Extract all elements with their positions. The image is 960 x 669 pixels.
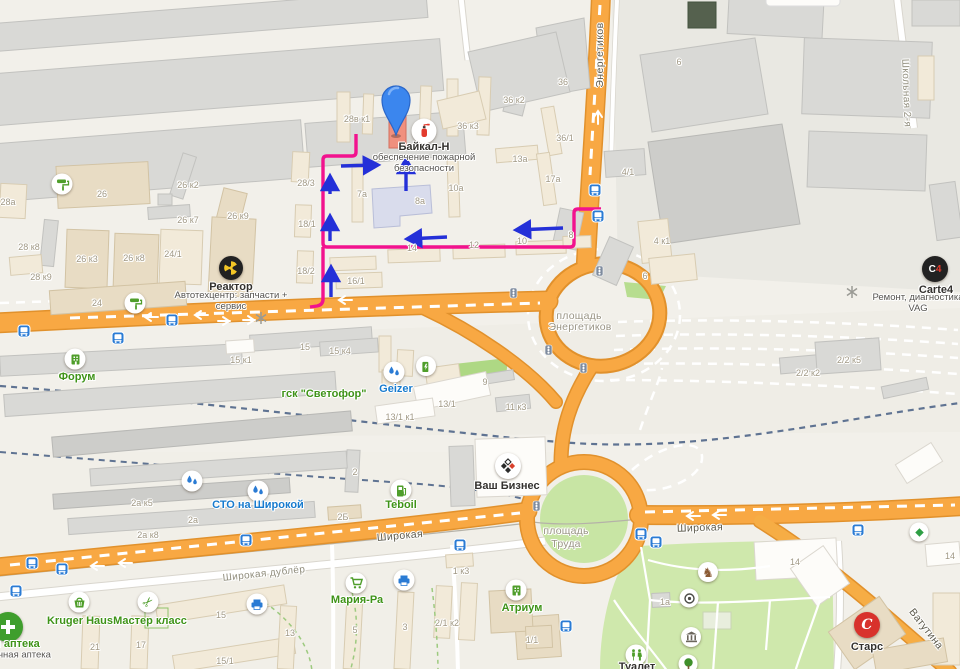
scissors-icon-master-klass[interactable]: ✂ [138, 592, 159, 613]
business-icon-vash-biznes[interactable] [495, 453, 521, 479]
traffic-light-icon [578, 363, 589, 374]
building-label: 36 [558, 77, 568, 87]
labels-layer: 28в к13636 к236 к336/113а17а10а8а7а28/31… [0, 0, 960, 669]
poi-label-master-klass[interactable]: Мастер класс [113, 615, 187, 627]
building-label: 2/1 к2 [435, 618, 459, 628]
building-icon-atrium[interactable] [506, 580, 527, 601]
building-label: 28в к1 [344, 114, 370, 124]
building-label: 10 [517, 236, 527, 246]
building-label: 18/2 [297, 266, 315, 276]
building-label: 8 [568, 230, 573, 240]
building-label: 2а к5 [131, 498, 152, 508]
street-label: площадь [543, 525, 588, 537]
camera-icon [680, 589, 699, 608]
poi-label-geizer[interactable]: Geizer [379, 383, 413, 395]
building-label: 5 [352, 625, 357, 635]
building-label: 36 к3 [457, 121, 478, 131]
building-label: 28 к9 [30, 272, 51, 282]
building-label: 15 к1 [230, 355, 251, 365]
building-label: 14 [407, 243, 417, 253]
street-label: Школьная 2-я [899, 59, 912, 128]
bus-stop-icon[interactable] [166, 314, 179, 327]
poi-label-kruger-haus[interactable]: Kruger Haus [47, 615, 113, 627]
building-label: 28/3 [297, 178, 315, 188]
museum-icon [681, 627, 701, 647]
street-label: площадь [556, 310, 601, 322]
fuel-icon-teboil[interactable] [391, 480, 412, 501]
building-label: 28а [0, 197, 15, 207]
building-icon-forum[interactable] [65, 349, 86, 370]
building-label: 4 к1 [654, 236, 670, 246]
printer-icon [247, 594, 268, 615]
building-label: 2 [352, 467, 357, 477]
printer-icon [394, 570, 415, 591]
poi-label-atrium[interactable]: Атриум [502, 602, 543, 614]
building-label: 13/1 к1 [386, 412, 415, 422]
building-label: 4/1 [622, 167, 635, 177]
building-label: 17 [136, 640, 146, 650]
rail-cross-icon [846, 286, 858, 298]
traffic-light-icon [531, 501, 542, 512]
building-label: 1а [660, 597, 670, 607]
poi-label-carte4[interactable]: Carte4 [919, 284, 953, 296]
bus-stop-icon[interactable] [112, 332, 125, 345]
building-label: 36 к2 [503, 95, 524, 105]
water-icon-sto-na-shirokoy[interactable] [248, 481, 269, 502]
map-viewport[interactable]: 28в к13636 к236 к336/113а17а10а8а7а28/31… [0, 0, 960, 669]
poi-label-vash-biznes[interactable]: Ваш Бизнес [474, 480, 539, 492]
bus-stop-icon[interactable] [560, 620, 573, 633]
building-label: 26 к9 [227, 211, 248, 221]
carte4-icon-carte4[interactable]: C4 [922, 256, 948, 282]
poi-sublabel-apteka: очная аптека [0, 651, 82, 662]
poi-sublabel-carte4: Ремонт, диагностика VAG [862, 293, 960, 315]
street-label: Ватутина [906, 606, 945, 651]
paint-roller-icon [52, 174, 73, 195]
ev-charge-icon [416, 356, 436, 376]
traffic-light-icon [543, 345, 554, 356]
building-label: 26 к7 [177, 215, 198, 225]
building-label: 21 [90, 642, 100, 652]
building-label: 2Б [338, 512, 349, 522]
water-icon [182, 471, 203, 492]
poi-label-teboil[interactable]: Teboil [385, 499, 417, 511]
poi-label-forum[interactable]: Форум [59, 371, 96, 383]
building-label: 2/2 к2 [796, 368, 820, 378]
reactor-icon-reaktor[interactable] [219, 256, 243, 280]
building-label: 1 к3 [453, 566, 469, 576]
building-label: 14 [945, 551, 955, 561]
diamond-icon [910, 523, 929, 542]
bus-stop-icon[interactable] [10, 585, 23, 598]
bus-stop-icon[interactable] [454, 539, 467, 552]
bus-stop-icon[interactable] [18, 325, 31, 338]
paint-roller-icon [125, 293, 146, 314]
poi-sublabel-reaktor: Автотехцентр: запчасти + сервис [162, 291, 300, 313]
street-label: Широкая дублёр [222, 564, 306, 584]
building-label: 6 [676, 57, 681, 67]
building-label: 16/1 [347, 276, 365, 286]
building-label: 2/2 к5 [837, 355, 861, 365]
bus-stop-icon[interactable] [635, 528, 648, 541]
building-label: 14 [790, 557, 800, 567]
building-label: 11 к3 [506, 402, 527, 412]
bus-stop-icon[interactable] [26, 557, 39, 570]
bus-stop-icon[interactable] [240, 534, 253, 547]
horse-icon: ♞ [698, 562, 718, 582]
bus-stop-icon[interactable] [592, 210, 605, 223]
traffic-light-icon [594, 266, 605, 277]
basket-icon-kruger-haus[interactable] [69, 592, 90, 613]
building-label: 28 к8 [18, 242, 39, 252]
poi-label-reaktor[interactable]: Реактор [209, 281, 252, 293]
building-label: 13/1 [438, 399, 456, 409]
building-label: 17а [545, 174, 560, 184]
street-label: Энергетиков [548, 321, 611, 333]
building-label: 15/1 [216, 656, 234, 666]
street-label: Энергетиков [594, 22, 606, 87]
building-label: 36/1 [556, 133, 574, 143]
building-label: 13 [285, 628, 295, 638]
building-label: 18/1 [298, 219, 316, 229]
building-label: 26 к3 [76, 254, 97, 264]
building-label: 7а [357, 189, 367, 199]
building-label: 2а к8 [137, 530, 158, 540]
bus-stop-icon[interactable] [589, 184, 602, 197]
water-icon-geizer[interactable] [384, 362, 405, 383]
building-label: 15 к4 [329, 346, 350, 356]
building-label: 9 [482, 377, 487, 387]
building-label: 24 [92, 298, 102, 308]
poi-sublabel-baikal-n: обеспечение пожарной безопасности [360, 153, 488, 175]
building-label: 2а [188, 515, 198, 525]
poi-label-stars[interactable]: Старс [851, 641, 883, 653]
building-label: 12 [469, 240, 479, 250]
building-label: 24/1 [164, 249, 182, 259]
pharmacy-icon-apteka[interactable] [0, 612, 23, 642]
building-label: 13а [512, 154, 527, 164]
bus-stop-icon[interactable] [56, 563, 69, 576]
building-label: 15 [216, 610, 226, 620]
traffic-light-icon [508, 288, 519, 299]
rail-cross-icon [255, 312, 267, 324]
building-label: 26 [97, 189, 107, 199]
wc-icon-tualet[interactable] [626, 645, 647, 666]
building-label: 26 к2 [177, 180, 198, 190]
poi-label-gsk-svetofor[interactable]: гск "Светофор" [282, 388, 367, 400]
street-label: Широкая [677, 521, 724, 535]
building-label: 10а [448, 183, 463, 193]
building-label: 15 [300, 342, 310, 352]
building-label: 8а [415, 196, 425, 206]
cart-icon-maria-ra[interactable] [346, 573, 367, 594]
tree-icon [679, 655, 698, 669]
stars-icon-stars[interactable]: C [854, 612, 880, 638]
building-label: 26 к8 [123, 253, 144, 263]
poi-label-maria-ra[interactable]: Мария-Ра [331, 594, 383, 606]
building-label: 3 [402, 622, 407, 632]
bus-stop-icon[interactable] [852, 524, 865, 537]
building-label: 6 [642, 271, 647, 281]
bus-stop-icon[interactable] [650, 536, 663, 549]
fire-extinguisher-icon-baikal-n[interactable] [412, 119, 437, 144]
street-label: Широкая [376, 528, 423, 544]
street-label: Труда [551, 538, 580, 550]
building-label: 1/1 [526, 635, 539, 645]
